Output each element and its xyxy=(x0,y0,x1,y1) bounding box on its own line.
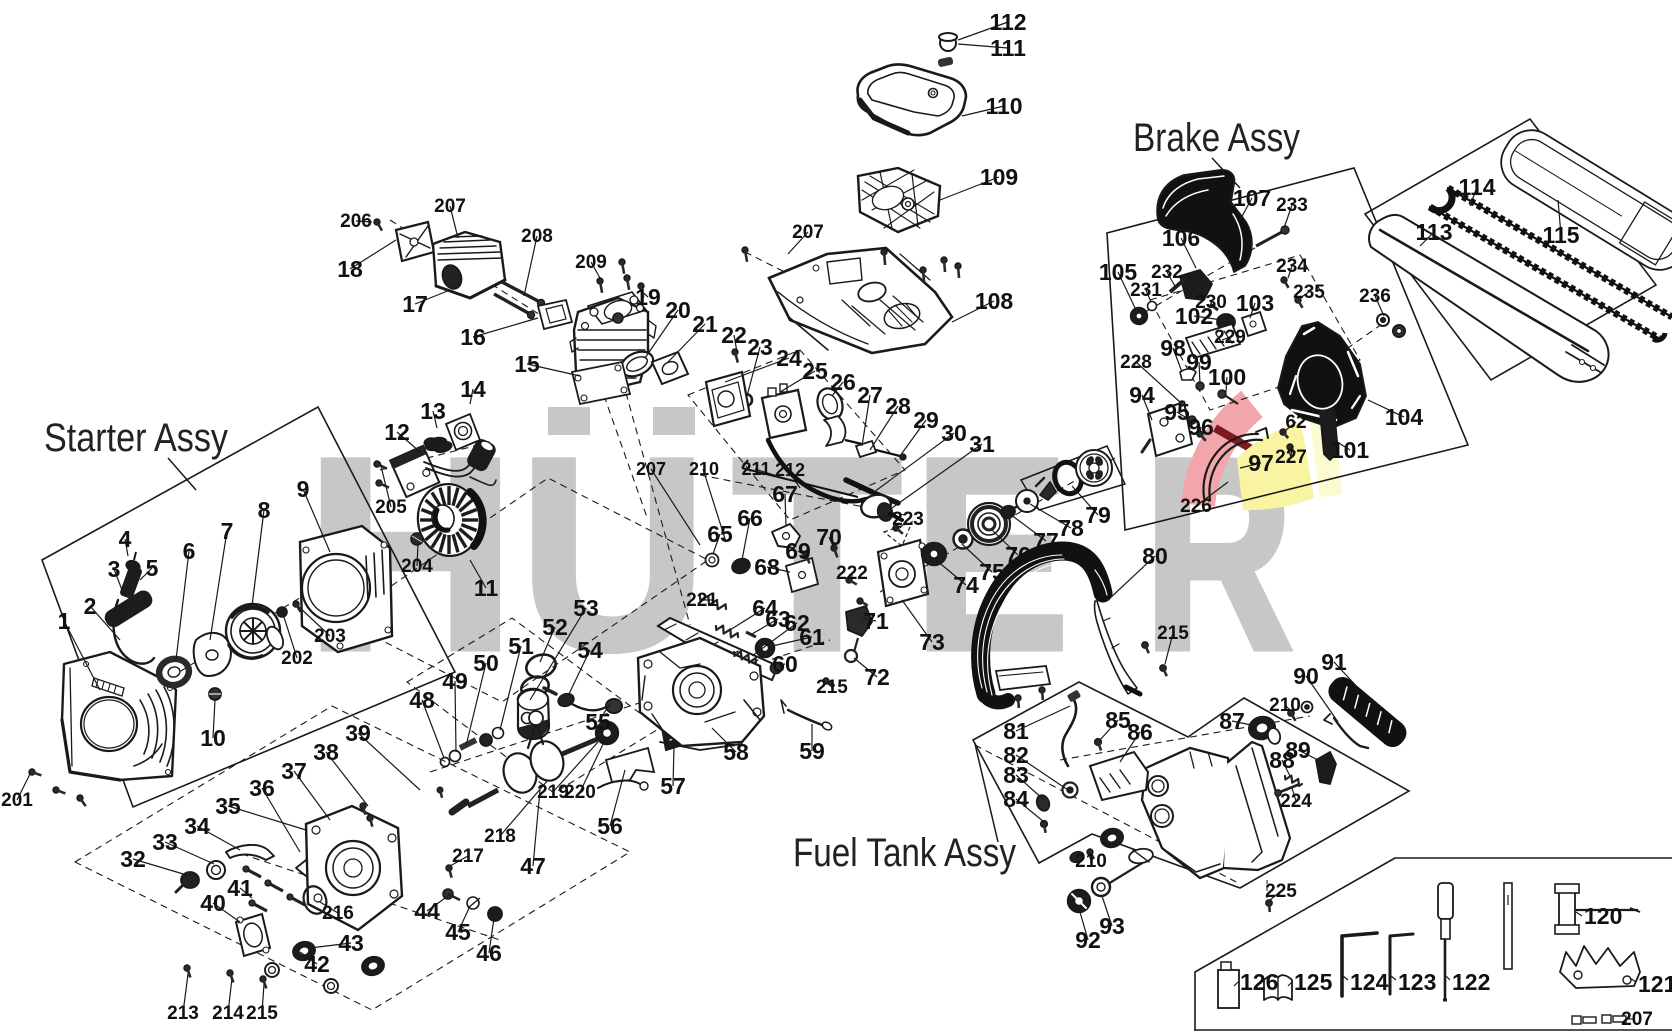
svg-text:75: 75 xyxy=(979,559,1005,585)
svg-text:230: 230 xyxy=(1195,292,1227,313)
svg-text:12: 12 xyxy=(384,419,410,445)
svg-text:Brake Assy: Brake Assy xyxy=(1133,116,1300,160)
svg-text:110: 110 xyxy=(985,93,1022,119)
svg-text:92: 92 xyxy=(1075,927,1101,953)
svg-text:55: 55 xyxy=(585,709,611,735)
svg-text:235: 235 xyxy=(1293,282,1325,303)
svg-text:1: 1 xyxy=(58,608,71,634)
svg-text:215: 215 xyxy=(246,1003,278,1024)
svg-text:232: 232 xyxy=(1151,262,1183,283)
svg-text:9: 9 xyxy=(297,476,310,502)
svg-text:57: 57 xyxy=(660,773,686,799)
svg-text:71: 71 xyxy=(863,608,889,634)
svg-text:65: 65 xyxy=(707,521,733,547)
svg-text:13: 13 xyxy=(420,398,446,424)
svg-text:210: 210 xyxy=(689,459,719,479)
svg-text:226: 226 xyxy=(1180,496,1212,517)
svg-text:205: 205 xyxy=(375,497,407,518)
svg-text:207: 207 xyxy=(1621,1009,1653,1030)
svg-text:215: 215 xyxy=(816,677,848,698)
svg-text:220: 220 xyxy=(564,782,596,803)
svg-text:210: 210 xyxy=(1075,851,1107,872)
svg-text:44: 44 xyxy=(414,898,440,924)
svg-text:89: 89 xyxy=(1285,737,1311,763)
svg-text:229: 229 xyxy=(1214,327,1246,348)
svg-text:101: 101 xyxy=(1331,437,1370,463)
svg-text:21: 21 xyxy=(692,311,718,337)
svg-text:214: 214 xyxy=(212,1003,244,1024)
svg-text:53: 53 xyxy=(573,595,599,621)
svg-text:29: 29 xyxy=(913,407,939,433)
svg-text:83: 83 xyxy=(1003,762,1029,788)
svg-text:38: 38 xyxy=(313,739,339,765)
svg-text:114: 114 xyxy=(1458,174,1495,200)
svg-text:26: 26 xyxy=(830,369,856,395)
svg-text:73: 73 xyxy=(919,629,945,655)
svg-text:47: 47 xyxy=(520,853,546,879)
svg-text:215: 215 xyxy=(1157,623,1189,644)
svg-text:46: 46 xyxy=(476,940,502,966)
svg-text:100: 100 xyxy=(1208,364,1246,390)
svg-text:76: 76 xyxy=(1005,542,1031,568)
svg-text:122: 122 xyxy=(1452,969,1490,995)
svg-text:5: 5 xyxy=(146,555,159,581)
svg-text:115: 115 xyxy=(1542,222,1579,248)
svg-text:125: 125 xyxy=(1294,969,1333,995)
svg-text:112: 112 xyxy=(989,9,1026,35)
svg-text:213: 213 xyxy=(167,1003,199,1024)
svg-text:20: 20 xyxy=(665,297,691,323)
svg-text:227: 227 xyxy=(1275,447,1307,468)
svg-text:41: 41 xyxy=(227,875,253,901)
svg-text:123: 123 xyxy=(1398,969,1436,995)
svg-text:208: 208 xyxy=(521,226,553,247)
svg-text:33: 33 xyxy=(152,829,178,855)
svg-text:69: 69 xyxy=(785,538,811,564)
svg-text:48: 48 xyxy=(409,687,435,713)
svg-text:234: 234 xyxy=(1276,256,1308,277)
svg-text:217: 217 xyxy=(452,846,484,867)
svg-text:Starter Assy: Starter Assy xyxy=(44,416,228,460)
svg-text:4: 4 xyxy=(119,526,132,552)
svg-text:42: 42 xyxy=(304,951,330,977)
svg-text:11: 11 xyxy=(474,575,499,601)
svg-text:106: 106 xyxy=(1162,225,1200,251)
svg-text:10: 10 xyxy=(200,725,226,751)
svg-text:45: 45 xyxy=(445,919,471,945)
svg-text:113: 113 xyxy=(1415,219,1452,245)
svg-text:77: 77 xyxy=(1033,528,1059,554)
svg-text:74: 74 xyxy=(953,572,979,598)
svg-text:107: 107 xyxy=(1233,185,1271,211)
svg-text:78: 78 xyxy=(1058,515,1084,541)
svg-text:210: 210 xyxy=(1269,695,1301,716)
svg-text:225: 225 xyxy=(1265,881,1297,902)
svg-text:84: 84 xyxy=(1003,786,1029,812)
svg-text:203: 203 xyxy=(314,626,346,647)
svg-text:80: 80 xyxy=(1142,543,1168,569)
svg-text:231: 231 xyxy=(1130,280,1162,301)
svg-text:121: 121 xyxy=(1638,971,1672,997)
svg-text:15: 15 xyxy=(514,351,540,377)
svg-text:126: 126 xyxy=(1240,969,1278,995)
svg-text:50: 50 xyxy=(473,650,499,676)
svg-text:209: 209 xyxy=(575,252,607,273)
svg-text:91: 91 xyxy=(1321,649,1347,675)
svg-text:98: 98 xyxy=(1160,335,1186,361)
svg-text:64: 64 xyxy=(752,595,778,621)
svg-text:109: 109 xyxy=(980,164,1018,190)
svg-text:23: 23 xyxy=(747,334,773,360)
svg-text:206: 206 xyxy=(340,211,372,232)
svg-text:60: 60 xyxy=(772,651,798,677)
svg-text:36: 36 xyxy=(249,775,275,801)
svg-text:207: 207 xyxy=(434,196,466,217)
svg-text:212: 212 xyxy=(775,460,805,480)
svg-text:8: 8 xyxy=(258,497,271,523)
svg-text:111: 111 xyxy=(990,35,1026,61)
svg-text:68: 68 xyxy=(754,554,780,580)
svg-text:87: 87 xyxy=(1219,708,1245,734)
svg-text:72: 72 xyxy=(864,664,890,690)
svg-text:79: 79 xyxy=(1085,502,1111,528)
svg-text:19: 19 xyxy=(635,284,661,310)
svg-text:95: 95 xyxy=(1164,399,1190,425)
svg-text:30: 30 xyxy=(941,420,967,446)
svg-text:104: 104 xyxy=(1385,404,1424,430)
svg-text:34: 34 xyxy=(184,813,210,839)
svg-text:14: 14 xyxy=(460,376,486,402)
svg-text:224: 224 xyxy=(1280,791,1312,812)
svg-text:52: 52 xyxy=(542,614,568,640)
svg-text:222: 222 xyxy=(836,563,868,584)
svg-text:40: 40 xyxy=(200,890,226,916)
svg-text:54: 54 xyxy=(577,637,603,663)
svg-text:94: 94 xyxy=(1129,382,1155,408)
svg-text:233: 233 xyxy=(1276,195,1308,216)
svg-text:211: 211 xyxy=(741,459,770,479)
svg-text:2: 2 xyxy=(84,593,97,619)
svg-text:67: 67 xyxy=(772,481,798,507)
svg-text:81: 81 xyxy=(1003,718,1029,744)
svg-text:228: 228 xyxy=(1120,352,1152,373)
svg-text:31: 31 xyxy=(969,431,995,457)
svg-text:18: 18 xyxy=(337,256,363,282)
svg-text:103: 103 xyxy=(1236,290,1274,316)
svg-text:201: 201 xyxy=(1,790,33,811)
svg-text:28: 28 xyxy=(885,393,911,419)
svg-text:56: 56 xyxy=(597,813,623,839)
svg-text:70: 70 xyxy=(816,524,842,550)
svg-text:207: 207 xyxy=(636,459,666,479)
svg-text:204: 204 xyxy=(401,556,433,577)
svg-text:3: 3 xyxy=(108,556,121,582)
svg-text:32: 32 xyxy=(120,846,146,872)
svg-text:218: 218 xyxy=(484,826,516,847)
svg-text:58: 58 xyxy=(723,739,749,765)
svg-text:43: 43 xyxy=(338,930,364,956)
svg-text:24: 24 xyxy=(776,345,802,371)
svg-text:202: 202 xyxy=(281,648,313,669)
svg-text:35: 35 xyxy=(215,793,241,819)
svg-text:27: 27 xyxy=(857,382,883,408)
svg-text:207: 207 xyxy=(792,222,824,243)
svg-text:66: 66 xyxy=(737,505,763,531)
svg-text:49: 49 xyxy=(442,668,468,694)
svg-text:16: 16 xyxy=(460,324,486,350)
svg-text:90: 90 xyxy=(1293,663,1319,689)
svg-text:221: 221 xyxy=(686,590,718,611)
svg-text:17: 17 xyxy=(402,291,428,317)
svg-text:25: 25 xyxy=(802,358,828,384)
svg-text:86: 86 xyxy=(1127,719,1153,745)
svg-text:51: 51 xyxy=(508,633,534,659)
svg-text:37: 37 xyxy=(281,758,307,784)
svg-text:39: 39 xyxy=(345,720,371,746)
svg-text:223: 223 xyxy=(892,509,924,530)
svg-text:97: 97 xyxy=(1248,450,1274,476)
svg-text:6: 6 xyxy=(183,538,196,564)
svg-text:62: 62 xyxy=(1285,412,1306,433)
svg-text:22: 22 xyxy=(721,322,747,348)
svg-text:93: 93 xyxy=(1099,913,1125,939)
svg-text:108: 108 xyxy=(975,288,1014,314)
svg-text:120: 120 xyxy=(1584,903,1622,929)
svg-text:96: 96 xyxy=(1188,414,1214,440)
svg-text:7: 7 xyxy=(221,518,234,544)
svg-text:124: 124 xyxy=(1350,969,1389,995)
svg-text:Fuel Tank Assy: Fuel Tank Assy xyxy=(793,831,1016,875)
svg-text:216: 216 xyxy=(322,903,354,924)
svg-text:59: 59 xyxy=(799,738,825,764)
svg-text:236: 236 xyxy=(1359,286,1391,307)
